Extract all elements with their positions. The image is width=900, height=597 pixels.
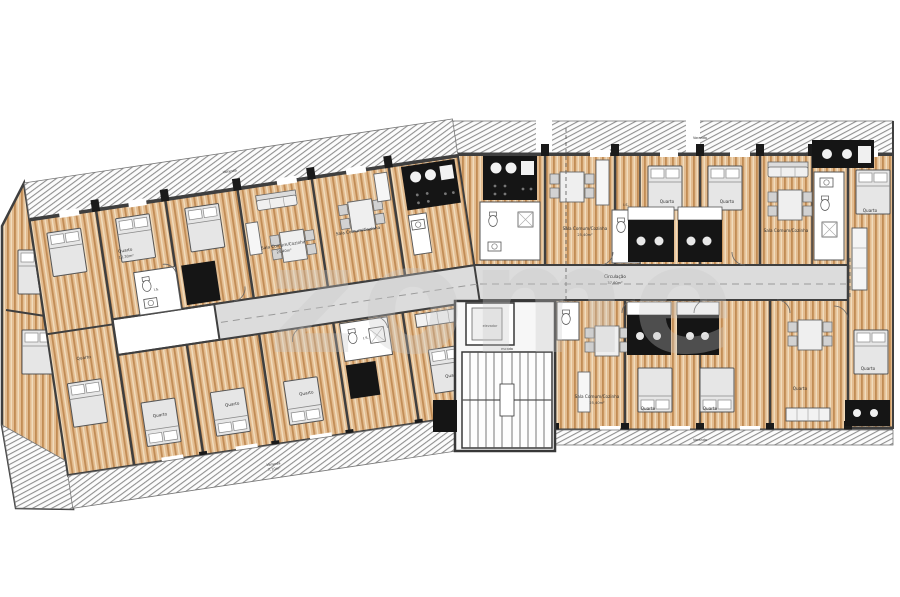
bed-icon <box>47 228 87 277</box>
room-label: I.S. <box>153 287 159 292</box>
kitchen-block <box>812 140 874 168</box>
toilet-icon <box>821 196 830 211</box>
sofa-icon <box>768 162 808 177</box>
room-label: Quarto <box>793 386 808 391</box>
bed-icon <box>185 203 225 252</box>
bed-icon <box>141 398 181 447</box>
kitchen-block <box>181 261 221 306</box>
room-label: Quarto <box>861 366 876 371</box>
sink-icon <box>144 298 158 309</box>
watermark: zome <box>268 214 740 388</box>
room-label: Sala Comum/Cozinha <box>575 394 620 399</box>
room-label: Varanda <box>693 136 707 140</box>
shower-icon <box>822 222 837 237</box>
bed-icon <box>67 379 107 428</box>
room-label: Quarto <box>641 406 656 411</box>
room-label: Varanda <box>693 438 707 442</box>
room-label: Quarto <box>720 199 735 204</box>
floorplan-page: Sala Comum/Cozinha 25,40m² Sala Comum/Co… <box>0 0 900 597</box>
room-area-label: 25,40m² <box>589 401 605 405</box>
kitchen-block <box>401 159 461 210</box>
kitchen-block <box>483 156 537 200</box>
bed-icon <box>210 388 250 437</box>
room-label: Sala Comum/Cozinha <box>764 228 809 233</box>
room-label: Quarto <box>863 208 878 213</box>
room-label: Quarto <box>703 406 718 411</box>
kitchen-block <box>433 400 457 432</box>
room-label: Quarto <box>660 199 675 204</box>
floorplan-drawing: Sala Comum/Cozinha 25,40m² Sala Comum/Co… <box>0 0 900 597</box>
room-label: I.S. <box>623 203 628 207</box>
wardrobe-icon <box>852 228 867 290</box>
sink-icon <box>820 178 833 187</box>
kitchen-block <box>845 400 890 426</box>
wardrobe-icon <box>786 408 830 421</box>
cabinet <box>596 160 609 205</box>
